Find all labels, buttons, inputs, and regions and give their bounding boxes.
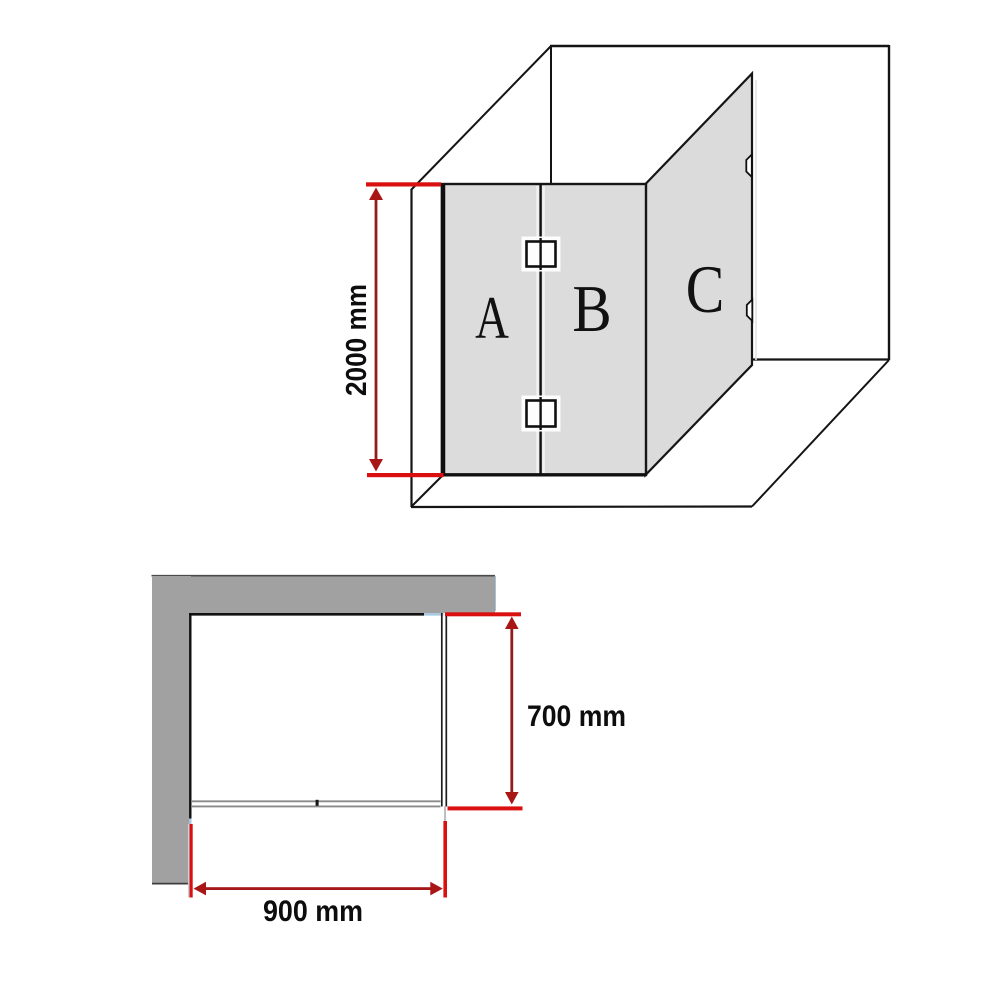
svg-text:C: C	[686, 252, 725, 327]
svg-text:B: B	[572, 272, 611, 346]
svg-text:A: A	[475, 284, 509, 351]
svg-text:700 mm: 700 mm	[527, 700, 626, 733]
svg-text:900 mm: 900 mm	[263, 895, 363, 928]
svg-text:2000 mm: 2000 mm	[341, 284, 373, 396]
